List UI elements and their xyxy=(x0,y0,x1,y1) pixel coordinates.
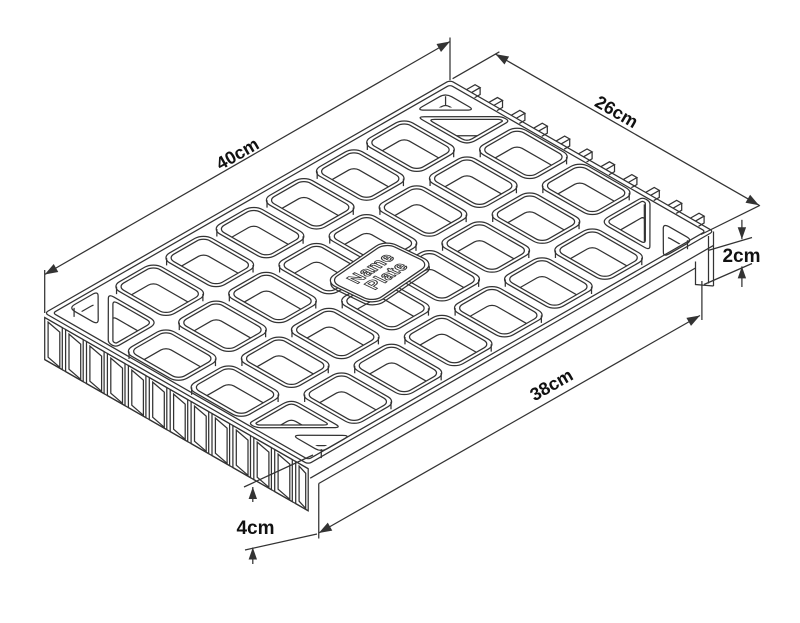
svg-text:2cm: 2cm xyxy=(722,246,760,267)
svg-text:4cm: 4cm xyxy=(236,518,274,539)
